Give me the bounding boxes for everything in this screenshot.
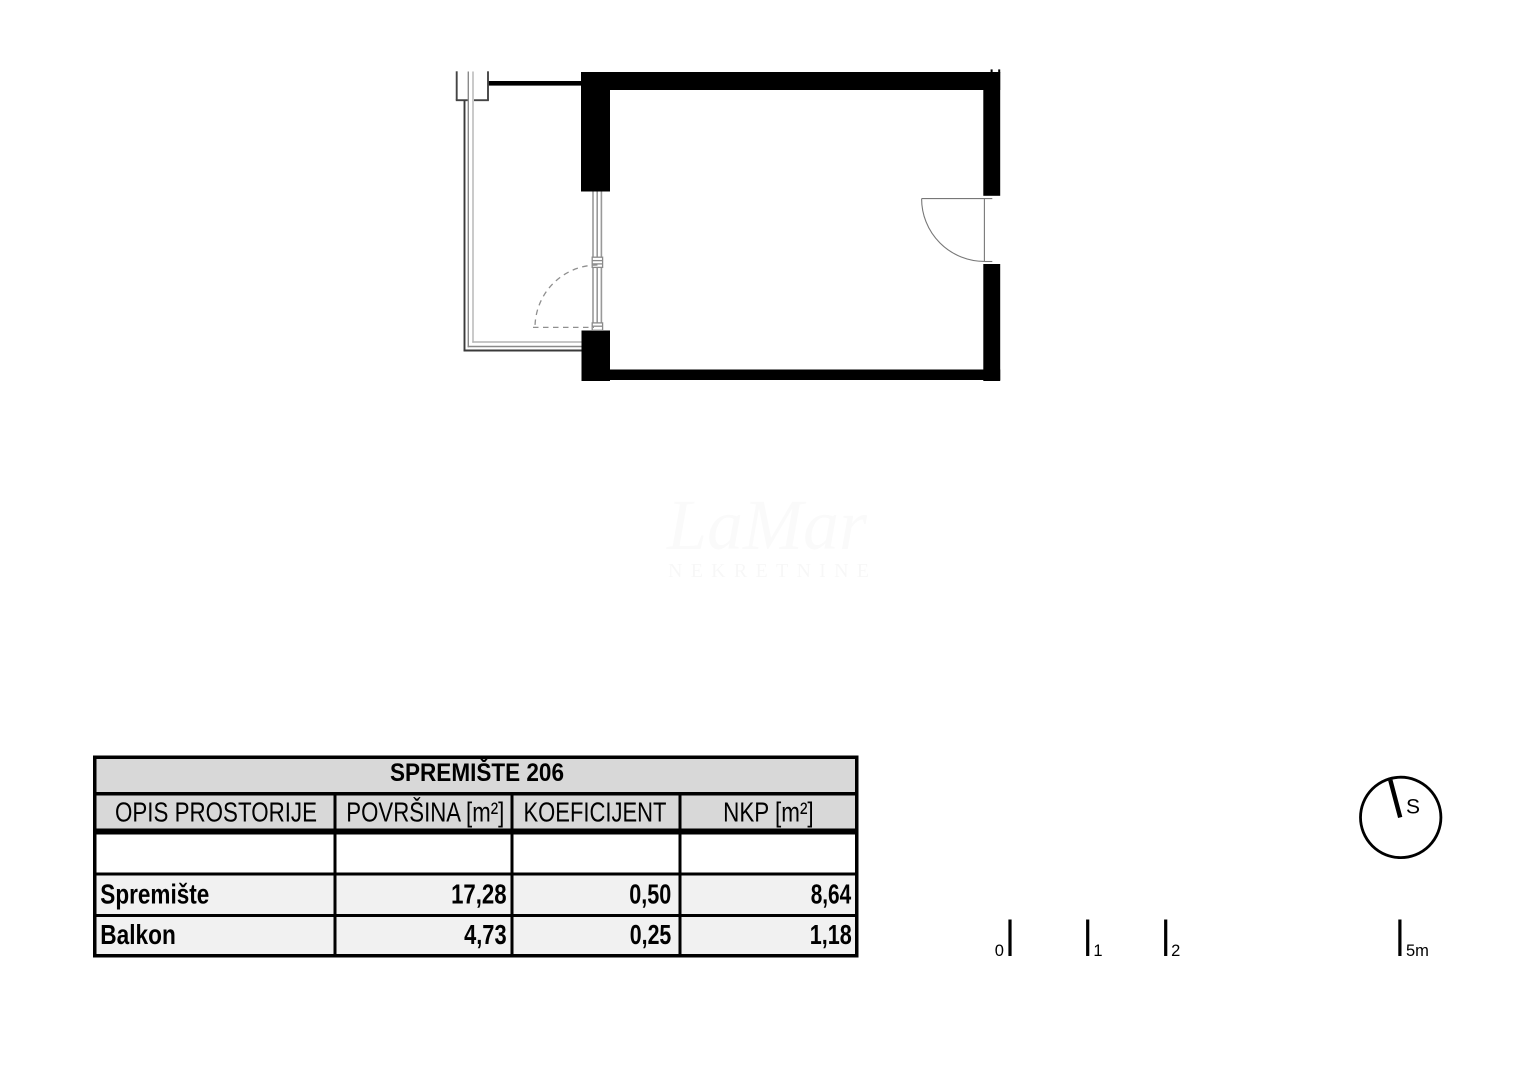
svg-text:1,18: 1,18	[810, 919, 852, 950]
svg-text:17,28: 17,28	[451, 879, 507, 910]
svg-text:4,73: 4,73	[464, 919, 507, 950]
svg-text:NKP [m²]: NKP [m²]	[723, 797, 814, 828]
svg-text:0: 0	[995, 942, 1004, 960]
svg-text:5m: 5m	[1406, 942, 1429, 960]
svg-text:SPREMIŠTE 206: SPREMIŠTE 206	[390, 757, 564, 787]
svg-text:KOEFICIJENT: KOEFICIJENT	[524, 797, 667, 828]
svg-text:0,25: 0,25	[630, 919, 672, 950]
svg-text:2: 2	[1171, 942, 1180, 960]
svg-text:Balkon: Balkon	[100, 919, 176, 950]
svg-text:1: 1	[1093, 942, 1102, 960]
svg-text:OPIS PROSTORIJE: OPIS PROSTORIJE	[115, 797, 317, 828]
svg-text:0,50: 0,50	[629, 879, 671, 910]
svg-text:LaMar: LaMar	[666, 485, 868, 565]
svg-text:S: S	[1406, 796, 1420, 819]
svg-text:8,64: 8,64	[811, 879, 852, 910]
svg-text:Spremište: Spremište	[100, 879, 209, 910]
svg-text:POVRŠINA [m²]: POVRŠINA [m²]	[346, 797, 504, 828]
